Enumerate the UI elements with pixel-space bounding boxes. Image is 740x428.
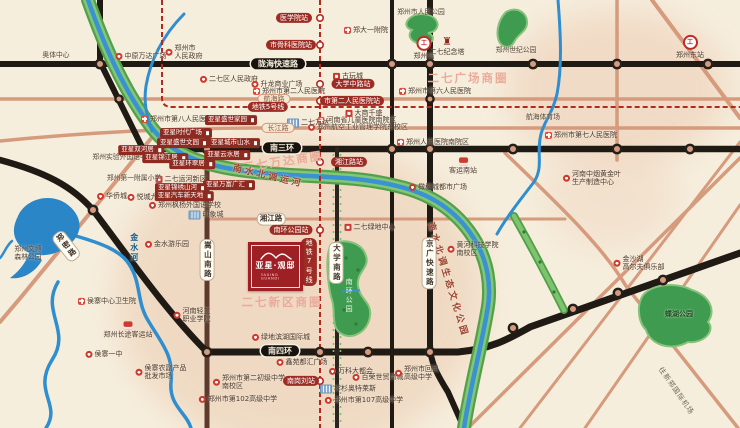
label-text: 郑州市第二初级中学南校区 xyxy=(222,374,285,391)
label-text: 市骨科医院站 xyxy=(270,41,312,49)
shop-label: 二七运河新区 xyxy=(156,175,207,183)
label-text: 橄榄城都市广场 xyxy=(418,183,467,191)
poi-icon xyxy=(448,246,455,253)
poi-icon xyxy=(86,351,93,358)
residence-label: 亚星盛世家园 xyxy=(205,115,257,125)
residence-label: 亚星时代广场 xyxy=(160,128,212,138)
hospital-label: 郑州市第七人民医院 xyxy=(545,131,617,139)
label-text: 湘江路 xyxy=(260,215,283,224)
label-text: 郑州文博森林公园 xyxy=(14,245,41,261)
metro-station-label: 市第二人民医院站 xyxy=(320,96,384,106)
poi-label: 郑州市回民高级中学 xyxy=(395,365,439,382)
road-label: 郑密路 xyxy=(50,229,82,264)
bus-station-label: 郑州长途客运站 xyxy=(104,321,153,338)
poi-icon xyxy=(145,241,152,248)
project-logo-mark xyxy=(259,250,293,261)
mall-icon xyxy=(189,211,201,220)
poi-label: 黄河科技学院南校区 xyxy=(448,241,499,258)
hospital-label: 郑州市第六人民医院 xyxy=(399,87,471,95)
label-text: 金水河 xyxy=(129,233,138,263)
hospital-label: 郑州人民医院南院区 xyxy=(397,138,469,146)
label-text: 鑫苑都汇广场 xyxy=(286,358,328,366)
monument-label: ♜二七纪念塔 xyxy=(430,36,465,56)
label-text: 河南轻工职业学院 xyxy=(183,307,211,324)
poi-label: 鑫苑都汇广场 xyxy=(277,358,328,366)
poi-icon xyxy=(325,397,332,404)
shop-icon xyxy=(346,110,353,117)
hospital-icon xyxy=(78,298,85,305)
label-text: 大学中路站 xyxy=(336,80,371,88)
metro-station-label: 大学中路站 xyxy=(332,79,375,89)
business-circle-label: 二七新区商圈 xyxy=(242,296,323,310)
label-text: 嵩山南路 xyxy=(203,241,212,279)
label-text: 亚星万富广汇 xyxy=(206,181,245,189)
label-text: 蝶湖公园 xyxy=(665,310,693,318)
road-label: 南三环 xyxy=(263,142,301,153)
label-text: 大学南路 xyxy=(332,244,341,282)
label-text: 二七运河新区 xyxy=(165,175,207,183)
poi-label: 侯寨农副产品批发市场 xyxy=(136,364,187,381)
label-text: 航海体育场 xyxy=(526,113,560,121)
bus-icon xyxy=(124,321,133,329)
poi-label: 郑州市第二初级中学南校区 xyxy=(213,374,285,391)
label-text: 地铁7号线 xyxy=(305,239,313,285)
poi-label: 郑州枫杨外国语学校 xyxy=(149,201,221,209)
label-text: 郑密路 xyxy=(54,232,79,260)
hospital-icon xyxy=(397,139,404,146)
hospital-icon xyxy=(545,132,552,139)
label-text: 湘江路站 xyxy=(335,158,363,166)
label-text: 南环公园 xyxy=(345,278,353,314)
hospital-icon xyxy=(141,116,148,123)
bus-icon xyxy=(459,157,468,165)
road-label: 长江路 xyxy=(262,123,295,133)
label-text: 郑州枫杨外国语学校 xyxy=(158,201,221,209)
poi-label: 绿地滨湖国际城 xyxy=(252,333,310,341)
mall-label: 印象城 xyxy=(189,211,224,220)
hospital-label: 郑大一附院 xyxy=(344,26,388,34)
label-text: 郑州市第六人民医院 xyxy=(408,87,471,95)
poi-icon xyxy=(128,194,135,201)
place-label: 奥体中心 xyxy=(42,51,69,59)
label-text: 郑州市人民公园 xyxy=(397,8,445,16)
project-logo-frame: 亚星·观邸 YAXING GUANDI xyxy=(251,245,300,288)
project-name-en: YAXING GUANDI xyxy=(261,273,290,280)
label-text: 亚星盛世文园 xyxy=(160,139,199,147)
poi-label: 金沙湖高尔夫俱乐部 xyxy=(614,255,665,272)
road-label: 陇海快速路 xyxy=(251,58,305,69)
label-text: 医学院站 xyxy=(280,14,308,22)
label-text: 金沙湖高尔夫俱乐部 xyxy=(623,255,665,272)
label-text: 郑州长途客运站 xyxy=(104,330,153,338)
poi-label: 郑州市第102高级中学 xyxy=(199,395,277,403)
map-labels-layer: 陇海快速路南三环南四环航海路长江路湘江路郑密路嵩山南路大学南路京广快速路地铁5号… xyxy=(0,0,740,428)
project-name: 亚星·观邸 xyxy=(255,262,295,270)
label-text: 二七新区商圈 xyxy=(242,296,323,310)
poi-icon xyxy=(409,184,416,191)
label-text: 亚星云水居 xyxy=(207,151,240,159)
label-text: 侯寨一中 xyxy=(95,350,123,358)
poi-icon xyxy=(166,49,173,56)
river-label: 金水河 xyxy=(129,233,138,263)
label-text: 南环公园站 xyxy=(274,226,309,234)
poi-icon xyxy=(97,193,104,200)
label-text: 河南中烟黄金叶生产制造中心 xyxy=(572,170,621,187)
label-text: 亚星汽车新天地 xyxy=(158,192,204,200)
poi-icon xyxy=(136,369,143,376)
residence-label: 亚星城市山水 xyxy=(208,138,260,148)
tower-icon: ♜ xyxy=(442,36,452,47)
place-label: 郑州第一附属小学 xyxy=(107,174,161,182)
poi-icon xyxy=(200,76,207,83)
road-label: 京广快速路 xyxy=(422,237,437,289)
direction-label: 往新郑国际机场 xyxy=(657,366,696,417)
poi-label: 郑州市第107高级中学 xyxy=(325,396,403,404)
label-text: 二七绿地中心 xyxy=(354,223,396,231)
poi-label: 郑州市人民政府 xyxy=(166,44,203,61)
label-text: 亚星环翠居 xyxy=(172,160,205,168)
mall-icon xyxy=(320,385,332,394)
label-text: 客运南站 xyxy=(449,166,477,174)
shop-icon xyxy=(345,224,352,231)
poi-icon xyxy=(395,370,402,377)
residence-label: 亚星汽车新天地 xyxy=(155,191,214,201)
label-text: 郑州市人民政府 xyxy=(175,44,203,61)
place-label: 郑州世纪公园 xyxy=(496,46,537,54)
label-text: 往新郑国际机场 xyxy=(657,366,696,417)
hospital-icon xyxy=(253,88,260,95)
poi-label: 河南中烟黄金叶生产制造中心 xyxy=(563,170,621,187)
label-text: 绿地滨湖国际城 xyxy=(261,333,310,341)
metro-line-label: 地铁5号线 xyxy=(248,102,288,112)
label-text: 京广快速路 xyxy=(425,239,434,287)
label-text: 奥体中心 xyxy=(42,51,69,59)
poi-label: 侯寨一中 xyxy=(86,350,123,358)
shop-label: 大商千盛 xyxy=(346,109,383,117)
label-text: 南三环 xyxy=(270,143,294,152)
shop-label: 二七绿地中心 xyxy=(345,223,396,231)
hospital-icon xyxy=(344,27,351,34)
label-text: 郑州市第七人民医院 xyxy=(554,131,617,139)
metro-station-label: 市骨科医院站 xyxy=(266,40,316,50)
residence-label: 亚星环翠居 xyxy=(169,159,215,169)
poi-icon xyxy=(174,312,181,319)
place-label: 郑州市人民公园 xyxy=(397,8,445,16)
poi-icon xyxy=(252,334,259,341)
railway-station-label: 工郑州东站 xyxy=(676,35,704,59)
label-text: 郑州市回民高级中学 xyxy=(404,365,439,382)
label-text: 郑州市第八人民医院 xyxy=(150,115,213,123)
label-text: 华侨城 xyxy=(106,192,127,200)
residence-label: 亚星盛世文园 xyxy=(157,138,209,148)
poi-icon xyxy=(353,374,360,381)
poi-icon xyxy=(199,396,206,403)
label-text: 郑大一附院 xyxy=(353,26,388,34)
road-label: 嵩山南路 xyxy=(200,239,215,281)
label-text: 二七纪念塔 xyxy=(430,48,465,56)
metro-line-label: 地铁7号线 xyxy=(301,238,317,286)
label-text: 南四环 xyxy=(268,346,292,355)
label-text: 侯寨中心卫生院 xyxy=(87,297,136,305)
poi-label: 二七区人民政府 xyxy=(200,75,258,83)
label-text: 郑州人民医院南院区 xyxy=(406,138,469,146)
road-label: 南四环 xyxy=(261,345,299,356)
park-label: 南环公园 xyxy=(345,278,353,314)
poi-label: 华侨城 xyxy=(97,192,127,200)
label-text: 中原万达广场 xyxy=(125,52,167,60)
poi-label: 中原万达广场 xyxy=(116,52,167,60)
poi-label: 河南轻工职业学院 xyxy=(174,307,211,324)
place-label: 郑州文博森林公园 xyxy=(14,245,41,261)
hospital-label: 郑州市第八人民医院 xyxy=(141,115,213,123)
place-label: 航海体育场 xyxy=(526,113,560,121)
label-text: 郑州世纪公园 xyxy=(496,46,537,54)
hospital-label: 侯寨中心卫生院 xyxy=(78,297,136,305)
project-logo: 亚星·观邸 YAXING GUANDI xyxy=(248,242,303,291)
metro-station-label: 湘江路站 xyxy=(331,157,367,167)
map-canvas[interactable]: 陇海快速路南三环南四环航海路长江路湘江路郑密路嵩山南路大学南路京广快速路地铁5号… xyxy=(0,0,740,428)
poi-icon xyxy=(213,379,220,386)
label-text: 二七广场商圈 xyxy=(428,72,509,86)
business-circle-label: 二七广场商圈 xyxy=(428,72,509,86)
label-text: 大商千盛 xyxy=(355,109,383,117)
label-text: 二七万达 xyxy=(301,119,329,127)
label-text: 黄河科技学院南校区 xyxy=(457,241,499,258)
metro-station-label: 南环公园站 xyxy=(270,225,313,235)
label-text: 金水游乐园 xyxy=(154,240,189,248)
label-text: 侯寨农副产品批发市场 xyxy=(145,364,187,381)
park-label: 蝶湖公园 xyxy=(665,310,693,318)
poi-icon xyxy=(149,202,156,209)
metro-station-label: 南岗刘站 xyxy=(283,376,319,386)
label-text: 郑州第一附属小学 xyxy=(107,174,161,182)
poi-icon xyxy=(277,359,284,366)
label-text: 印象城 xyxy=(203,211,224,219)
label-text: 长江路 xyxy=(268,124,289,132)
poi-icon xyxy=(614,260,621,267)
bus-station-label: 客运南站 xyxy=(449,157,477,174)
metro-station-label: 医学院站 xyxy=(276,13,312,23)
label-text: 地铁5号线 xyxy=(252,103,284,111)
label-text: 亚星城市山水 xyxy=(211,139,250,147)
label-text: 郑州市第102高级中学 xyxy=(208,395,277,403)
poi-icon xyxy=(563,175,570,182)
poi-icon xyxy=(329,368,336,375)
poi-icon xyxy=(116,53,123,60)
residence-label: 亚星万富广汇 xyxy=(203,180,255,190)
label-text: 亚星盛世家园 xyxy=(208,116,247,124)
label-text: 郑州市第107高级中学 xyxy=(334,396,403,404)
label-text: 陇海快速路 xyxy=(258,59,298,68)
poi-label: 金水游乐园 xyxy=(145,240,189,248)
road-label: 大学南路 xyxy=(329,242,344,284)
label-text: 杉杉奥特莱斯 xyxy=(334,385,376,393)
label-text: 市第二人民医院站 xyxy=(324,97,380,105)
hospital-icon xyxy=(399,88,406,95)
mall-label: 杉杉奥特莱斯 xyxy=(320,385,376,394)
road-label: 湘江路 xyxy=(257,213,286,226)
label-text: 南岗刘站 xyxy=(287,377,315,385)
railway-icon: 工 xyxy=(683,35,698,50)
label-text: 亚星时代广场 xyxy=(163,129,202,137)
poi-label: 橄榄城都市广场 xyxy=(409,183,467,191)
label-text: 郑州东站 xyxy=(676,51,704,59)
